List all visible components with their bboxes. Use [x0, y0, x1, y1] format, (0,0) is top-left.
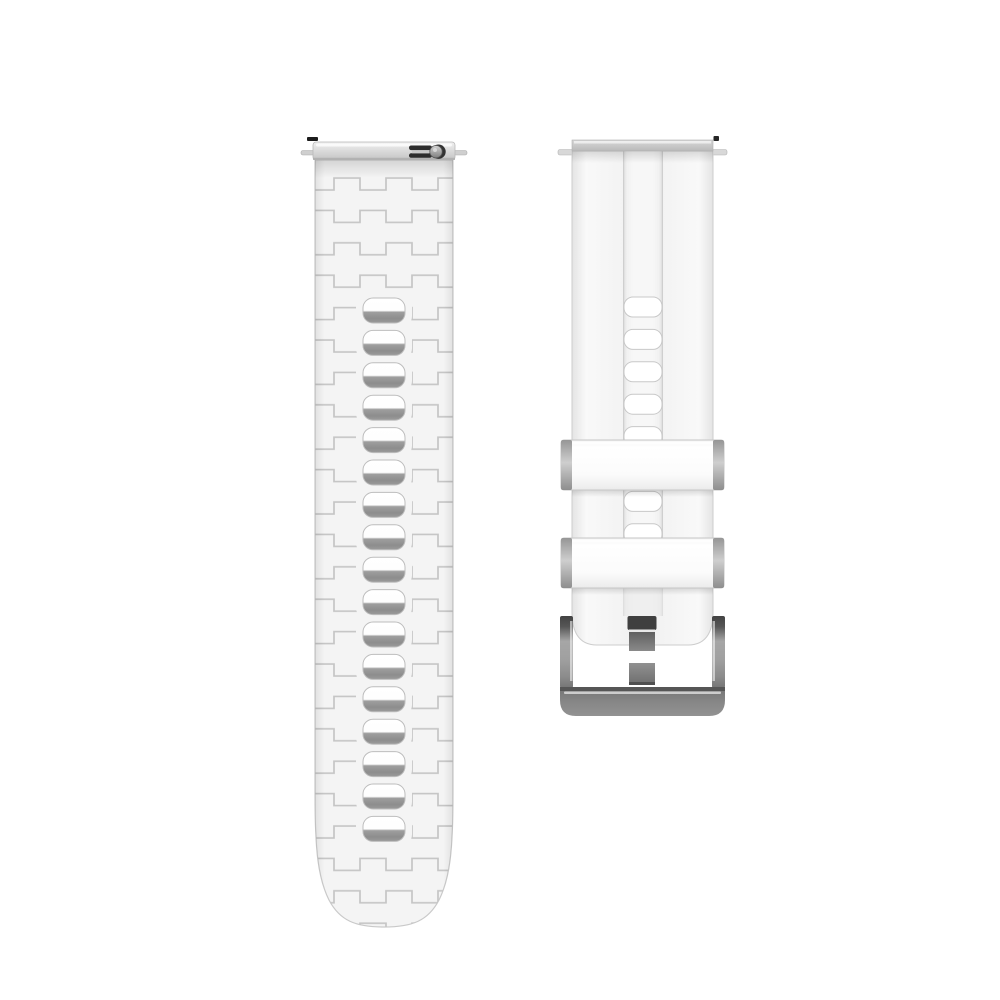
- channel-hole: [624, 329, 662, 349]
- buckle-prong: [628, 616, 657, 685]
- keeper-cap-left: [561, 538, 572, 588]
- keeper-highlight: [572, 442, 713, 445]
- channel-hole: [624, 297, 662, 317]
- watch-band-illustration: [0, 0, 1000, 1000]
- left-strap-piece: [301, 137, 467, 930]
- spring-bar-tip-right: [714, 136, 720, 141]
- quick-release-tab: [409, 145, 446, 159]
- left-strap-body: [315, 160, 453, 930]
- buckle-bottom-bar: [560, 687, 725, 716]
- keeper-band: [561, 538, 724, 588]
- keeper-cap-left: [561, 440, 572, 490]
- keeper-band: [561, 440, 724, 490]
- right-lug-bar: [572, 140, 713, 151]
- keeper-shadow: [572, 588, 713, 595]
- product-photo: [0, 0, 1000, 1000]
- keeper-cap-right: [713, 440, 724, 490]
- keeper-cap-right: [713, 538, 724, 588]
- spring-bar-tip-left: [307, 137, 318, 141]
- keeper-shadow: [572, 490, 713, 497]
- right-strap-piece: [558, 136, 727, 716]
- channel-hole: [624, 394, 662, 414]
- channel-hole: [624, 362, 662, 382]
- keeper-highlight: [572, 540, 713, 543]
